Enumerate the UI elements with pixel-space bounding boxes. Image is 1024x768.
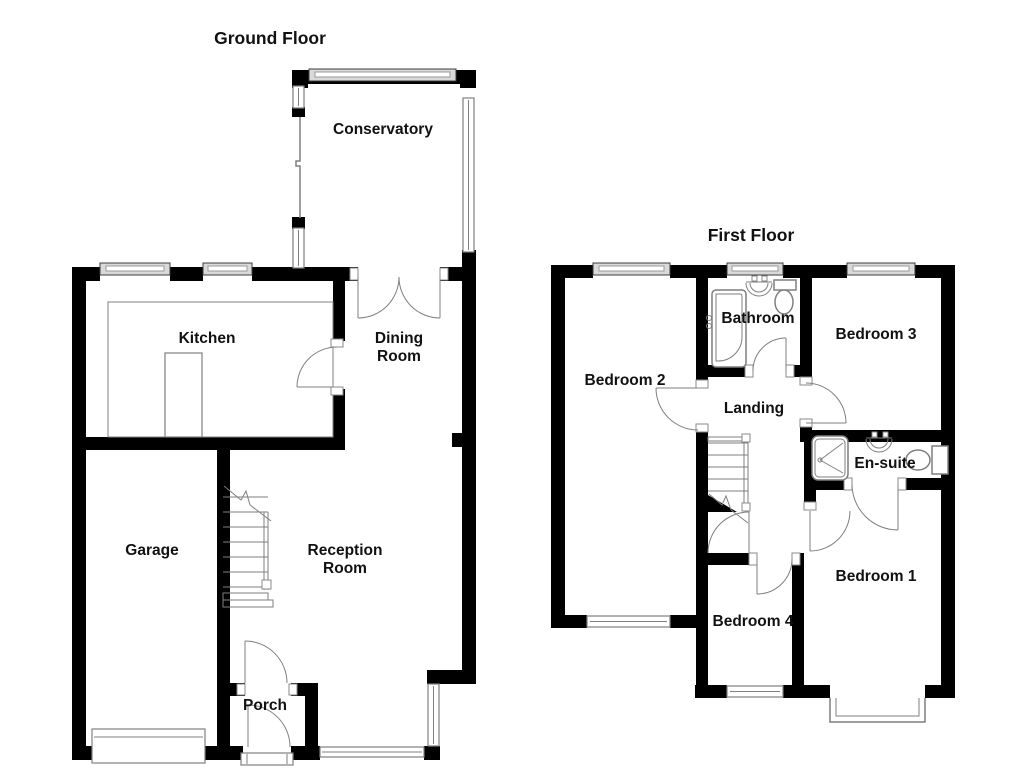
bathroom-toilet-icon xyxy=(774,280,796,314)
room-label-porch: Porch xyxy=(243,697,287,714)
bedroom4-window xyxy=(727,686,783,697)
staircase-first-icon xyxy=(708,434,750,523)
reception-side-window xyxy=(428,684,439,746)
room-label-bedroom3: Bedroom 3 xyxy=(836,326,917,343)
room-label-garage: Garage xyxy=(125,542,179,559)
floorplan-page: Ground Floor Conservatory Kitchen Dining… xyxy=(0,0,1024,768)
conservatory-top-window xyxy=(309,69,456,81)
room-label-reception-line2: Room xyxy=(323,560,367,577)
kitchen-door-arc xyxy=(297,347,337,387)
bathtub-icon xyxy=(707,290,747,367)
bedroom3-window xyxy=(847,263,915,275)
bedroom2-door-arc xyxy=(656,388,698,430)
garage-door xyxy=(92,729,205,763)
shower-icon xyxy=(812,436,848,480)
room-label-dining-line2: Room xyxy=(377,348,421,365)
bedroom2-bottom-window xyxy=(587,616,670,627)
bathroom-door-arc xyxy=(753,338,786,371)
bathroom-window xyxy=(727,263,783,275)
front-door-sill xyxy=(241,753,293,765)
room-label-bedroom1: Bedroom 1 xyxy=(836,568,917,585)
kitchen-units xyxy=(108,302,333,437)
porch-inner-door-arc xyxy=(245,641,287,683)
kitchen-window-left xyxy=(100,263,170,275)
bedroom1-door-arc xyxy=(810,511,850,551)
bedroom3-door-arc xyxy=(806,383,846,423)
staircase-ground-icon xyxy=(223,486,273,607)
room-label-bathroom: Bathroom xyxy=(721,310,794,327)
conservatory-left-window-upper xyxy=(293,86,304,108)
reception-bottom-window xyxy=(320,747,424,757)
room-label-kitchen: Kitchen xyxy=(179,330,236,347)
room-label-landing: Landing xyxy=(724,400,784,417)
bedroom1-bay-window xyxy=(830,698,925,722)
room-label-conservatory: Conservatory xyxy=(333,121,433,138)
bedroom2-top-window xyxy=(593,263,670,275)
room-label-reception-line1: Reception xyxy=(308,542,383,559)
ground-floor-title: Ground Floor xyxy=(214,28,326,48)
conservatory-structure xyxy=(292,69,476,268)
kitchen-window-right xyxy=(203,263,252,275)
french-doors-arc xyxy=(358,277,440,318)
bedroom4-door-arc xyxy=(757,559,792,594)
ground-floor-plan xyxy=(72,69,476,765)
room-label-dining-line1: Dining xyxy=(375,330,423,347)
conservatory-left-window-lower xyxy=(293,228,304,268)
room-label-ensuite: En-suite xyxy=(854,455,916,472)
conservatory-right-window xyxy=(463,98,474,252)
floorplan-drawing: Ground Floor Conservatory Kitchen Dining… xyxy=(0,0,1024,768)
ensuite-door-arc xyxy=(852,484,898,530)
room-label-bedroom2: Bedroom 2 xyxy=(585,372,666,389)
bathroom-sink-icon xyxy=(746,276,772,296)
first-floor-title: First Floor xyxy=(708,225,795,245)
landing-stairs-door-arc xyxy=(708,512,749,553)
room-label-bedroom4: Bedroom 4 xyxy=(713,613,794,630)
